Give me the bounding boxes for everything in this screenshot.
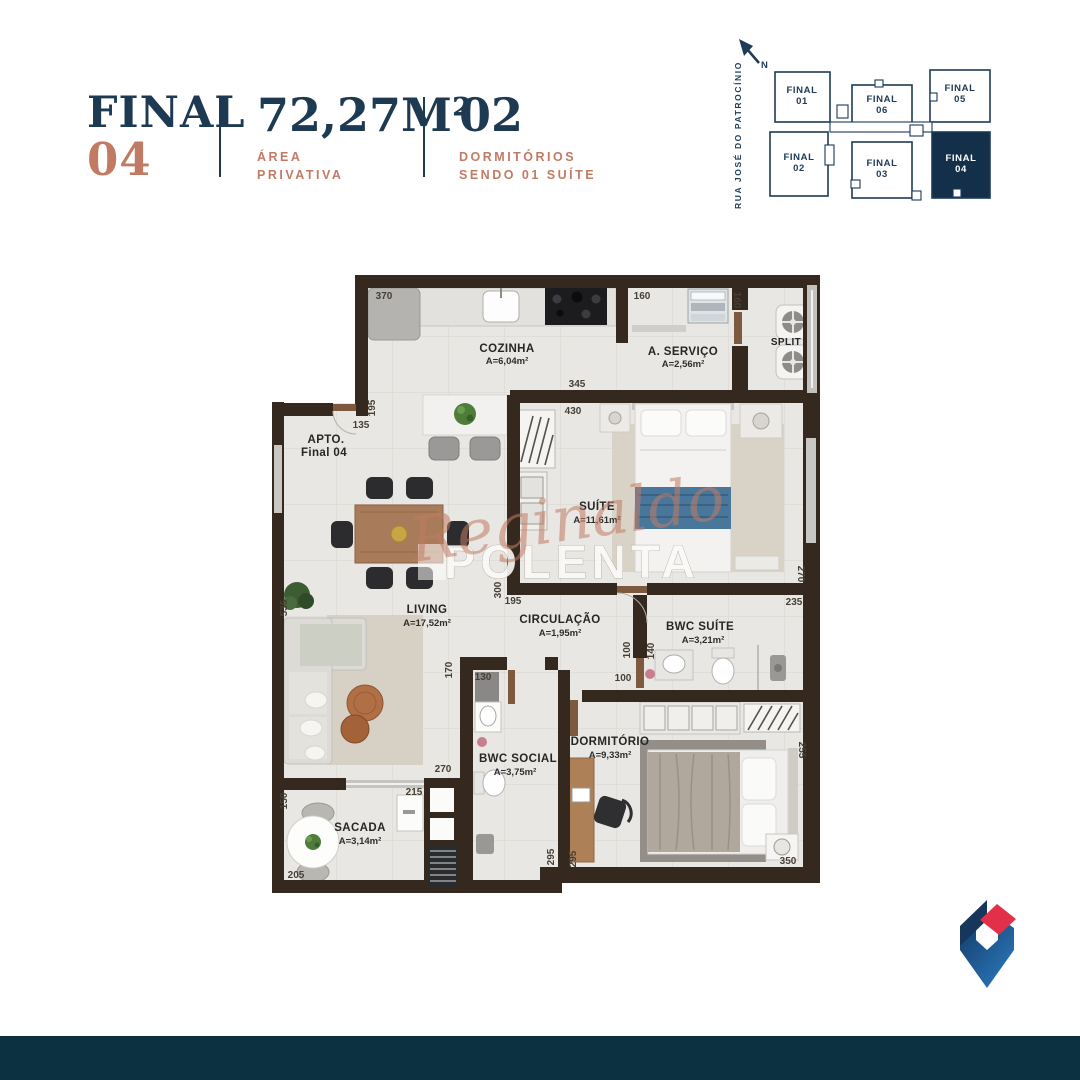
room-area-circulacao: A=1,95m²	[539, 628, 582, 639]
room-area-dormitorio: A=9,33m²	[589, 750, 632, 761]
entry-door	[333, 404, 356, 411]
area-caption: ÁREA PRIVATIVA	[257, 148, 472, 184]
area-caption-line2: PRIVATIVA	[257, 166, 472, 184]
dim-295-v: 295	[546, 848, 557, 865]
unit-title: FINAL 04	[87, 92, 246, 182]
key-unit-label: FINAL	[784, 152, 815, 163]
logo-mark	[950, 898, 1024, 994]
flowers-icon	[645, 669, 655, 679]
bedroom-wardrobe	[640, 702, 800, 734]
key-unit-label-highlighted: FINAL	[946, 153, 977, 164]
dim-135: 135	[353, 420, 370, 431]
key-plan: N RUA JOSÉ DO PATROCÍNIO FINAL	[725, 35, 1015, 210]
dim-270-v: 270	[795, 566, 806, 583]
dim-345: 345	[569, 379, 586, 390]
area-block: 72,27M² ÁREA PRIVATIVA	[257, 92, 472, 184]
bwc-suite-door	[636, 658, 644, 688]
dim-430: 430	[565, 406, 582, 417]
area-value: 72,27M²	[257, 92, 472, 138]
dim-370: 370	[376, 291, 393, 302]
dim-255-v: 255	[796, 742, 807, 759]
suite-window	[806, 438, 816, 543]
footer-bar	[0, 1036, 1080, 1080]
street-name: RUA JOSÉ DO PATROCÍNIO	[733, 61, 743, 209]
service-door	[734, 312, 742, 344]
shower-icon	[476, 834, 494, 854]
key-unit-label: FINAL	[867, 158, 898, 169]
plant-icon	[305, 834, 321, 850]
north-arrow-icon: N	[739, 39, 768, 71]
header-divider	[423, 97, 425, 177]
dim-295-v2: 295	[568, 850, 579, 867]
room-label-servico: A. SERVIÇO	[648, 346, 718, 358]
key-unit-number: 06	[876, 105, 888, 116]
bwc-social-door	[508, 670, 515, 704]
key-unit-number: 03	[876, 169, 888, 180]
dim-235: 235	[786, 597, 803, 608]
header-divider	[219, 97, 221, 177]
room-label-circulacao: CIRCULAÇÃO	[519, 613, 600, 626]
apto-tag-line1: APTO.	[308, 434, 345, 446]
dim-215: 215	[406, 787, 423, 798]
dim-150-v: 150	[279, 792, 290, 809]
room-label-sacada: SACADA	[334, 822, 386, 834]
key-unit-label: FINAL	[787, 85, 818, 96]
floor-plan: COZINHA A=6,04m² A. SERVIÇO A=2,56m² SPL…	[250, 258, 850, 908]
bedrooms-block: 02 DORMITÓRIOS SENDO 01 SUÍTE	[459, 92, 596, 184]
dim-535-v: 535	[279, 599, 290, 616]
centerpiece-icon	[391, 526, 407, 542]
room-area-bwc-social: A=3,75m²	[494, 767, 537, 778]
room-area-living: A=17,52m²	[403, 618, 451, 629]
key-unit-number: 02	[793, 163, 805, 174]
key-unit-number: 01	[796, 96, 808, 107]
apto-tag-line2: Final 04	[301, 447, 347, 459]
bedrooms-caption-line2: SENDO 01 SUÍTE	[459, 166, 596, 184]
key-unit-label: FINAL	[945, 83, 976, 94]
flowers-icon	[477, 737, 487, 747]
room-label-living: LIVING	[407, 604, 448, 616]
dim-100: 100	[615, 673, 632, 684]
bedrooms-caption-line1: DORMITÓRIOS	[459, 148, 596, 166]
suite-bench	[735, 556, 779, 570]
bedroom-door	[570, 700, 578, 736]
area-caption-line1: ÁREA	[257, 148, 472, 166]
svg-text:N: N	[761, 60, 768, 71]
key-unit-number: 05	[954, 94, 966, 105]
floorplan-flyer: FINAL 04 72,27M² ÁREA PRIVATIVA 02 DORMI…	[0, 0, 1080, 1080]
toilet-icon	[712, 658, 734, 684]
room-label-bwc-social: BWC SOCIAL	[479, 753, 557, 765]
dim-140-v: 140	[646, 642, 657, 659]
room-area-bwc-suite: A=3,21m²	[682, 635, 725, 646]
key-unit-number-highlighted: 04	[955, 164, 967, 175]
bedrooms-value: 02	[459, 92, 596, 138]
sink-icon	[663, 655, 685, 673]
room-label-bwc-suite: BWC SUÍTE	[666, 620, 734, 633]
room-area-sacada: A=3,14m²	[339, 836, 382, 847]
unit-title-number: 04	[87, 137, 246, 182]
dim-195: 195	[505, 596, 522, 607]
plant-icon	[454, 403, 476, 425]
dim-205: 205	[288, 870, 305, 881]
dim-195-v: 195	[367, 399, 378, 416]
sink-icon	[480, 706, 496, 726]
room-label-dormitorio: DORMITÓRIO	[571, 735, 650, 748]
stove-icon	[545, 288, 607, 325]
dim-160: 160	[634, 291, 651, 302]
dim-170-v: 170	[444, 661, 455, 678]
bedrooms-caption: DORMITÓRIOS SENDO 01 SUÍTE	[459, 148, 596, 184]
service-shaft	[428, 788, 458, 887]
dim-160-v: 160	[731, 292, 742, 309]
room-label-split: SPLIT	[771, 337, 801, 348]
room-area-cozinha: A=6,04m²	[486, 356, 529, 367]
living-window	[274, 445, 282, 513]
key-unit-label: FINAL	[867, 94, 898, 105]
dim-350: 350	[780, 856, 797, 867]
room-label-cozinha: COZINHA	[479, 343, 534, 355]
dim-100-v: 100	[622, 641, 633, 658]
unit-title-label: FINAL	[87, 92, 246, 135]
room-area-servico: A=2,56m²	[662, 359, 705, 370]
dim-270: 270	[435, 764, 452, 775]
dim-130: 130	[475, 672, 492, 683]
